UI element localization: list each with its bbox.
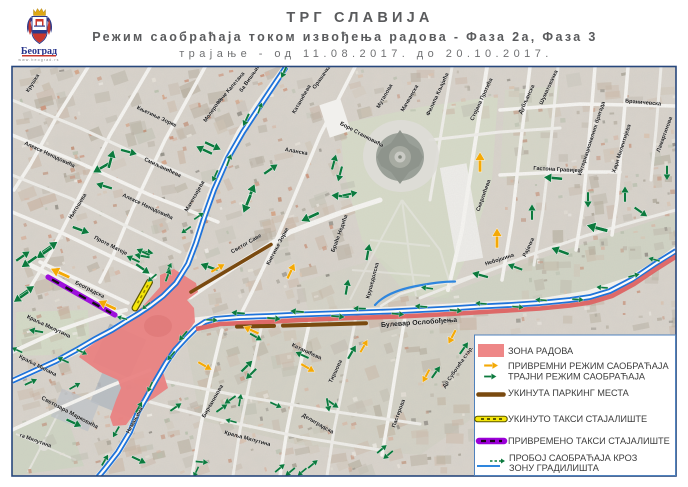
svg-text:ТРГ СЛАВИЈА: ТРГ СЛАВИЈА	[286, 10, 433, 26]
svg-text:УКИНУТО ТАКСИ СТАЈАЛИШТЕ: УКИНУТО ТАКСИ СТАЈАЛИШТЕ	[508, 414, 647, 424]
svg-text:ЗОНА РАДОВА: ЗОНА РАДОВА	[508, 346, 574, 356]
svg-text:ЗОНУ ГРАДИЛИШТА: ЗОНУ ГРАДИЛИШТА	[509, 463, 600, 473]
svg-text:УКИНУТА ПАРКИНГ МЕСТА: УКИНУТА ПАРКИНГ МЕСТА	[508, 388, 630, 398]
svg-text:www.beograd.rs: www.beograd.rs	[18, 58, 59, 62]
svg-text:ТРАЈНИ РЕЖИМ САОБРАЋАЈА: ТРАЈНИ РЕЖИМ САОБРАЋАЈА	[508, 372, 646, 382]
svg-text:трајање - од 11.08.2017. до 20: трајање - од 11.08.2017. до 20.10.2017.	[179, 48, 553, 60]
svg-text:ПРИВРЕМЕНО ТАКСИ СТАЈАЛИШТЕ: ПРИВРЕМЕНО ТАКСИ СТАЈАЛИШТЕ	[508, 436, 670, 446]
svg-text:ПРИВРЕМНИ РЕЖИМ САОБРАЋАЈА: ПРИВРЕМНИ РЕЖИМ САОБРАЋАЈА	[508, 361, 669, 371]
svg-text:Режим саобраћаја током извођењ: Режим саобраћаја током извођења радова -…	[92, 30, 597, 44]
svg-text:ПРОБОЈ САОБРАЋАЈА КРОЗ: ПРОБОЈ САОБРАЋАЈА КРОЗ	[509, 453, 638, 463]
